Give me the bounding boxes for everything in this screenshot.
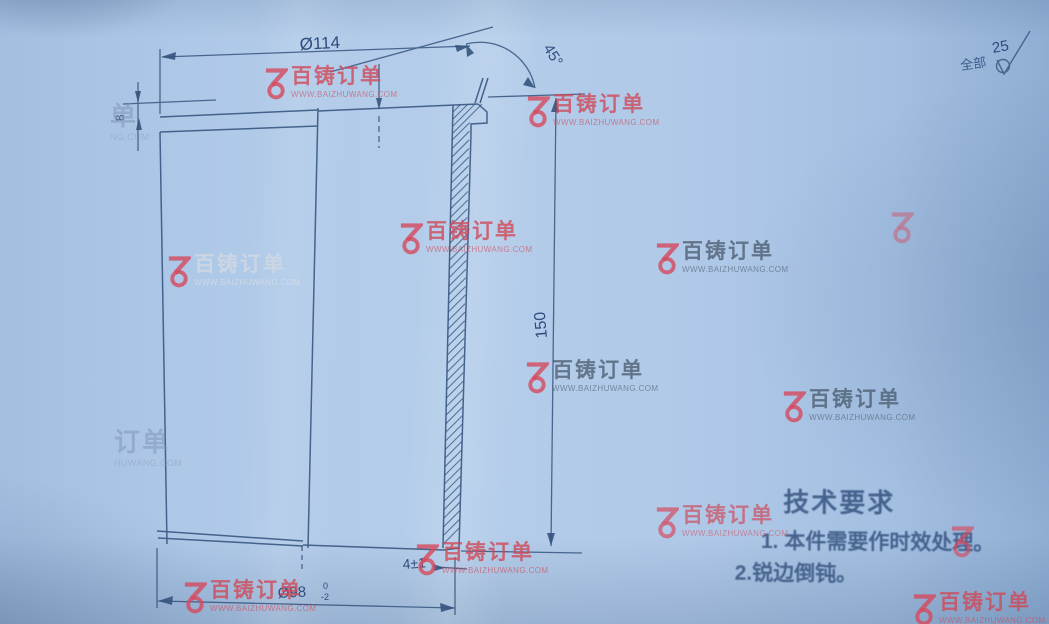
dim-top-step-depth: 8 [113,114,127,122]
dim-bottom-diameter: Ø98 [277,584,306,602]
dimension-arrowheads [135,44,559,612]
part-outline [157,78,488,550]
surface-roughness-value: 25 [991,37,1010,57]
dim-length: 150 [532,311,551,339]
dim-bottom-step: 4±1 [402,554,427,572]
dim-chamfer-angle: 45° [540,41,566,69]
dim-top-diameter: Ø114 [299,33,340,54]
section-hatching [443,104,482,544]
tech-requirement-item-2: 2.锐边倒钝。 [735,557,1035,590]
dim-bottom-tol-lower: -2 [321,592,329,602]
tech-requirement-item-1: 1. 本件需要作时效处理。 [761,525,1035,557]
dim-bottom-tol-upper: 0 [323,581,328,591]
tech-requirements-title: 技术要求 [783,482,1035,521]
photographed-engineering-drawing: Ø114 45° 150 8 4±1 Ø98 0 -2 25 全部 技术要求 1… [0,0,1049,624]
technical-requirements: 技术要求 1. 本件需要作时效处理。 2.锐边倒钝。 [735,482,1036,590]
surface-finish-scope: 全部 [959,54,987,72]
